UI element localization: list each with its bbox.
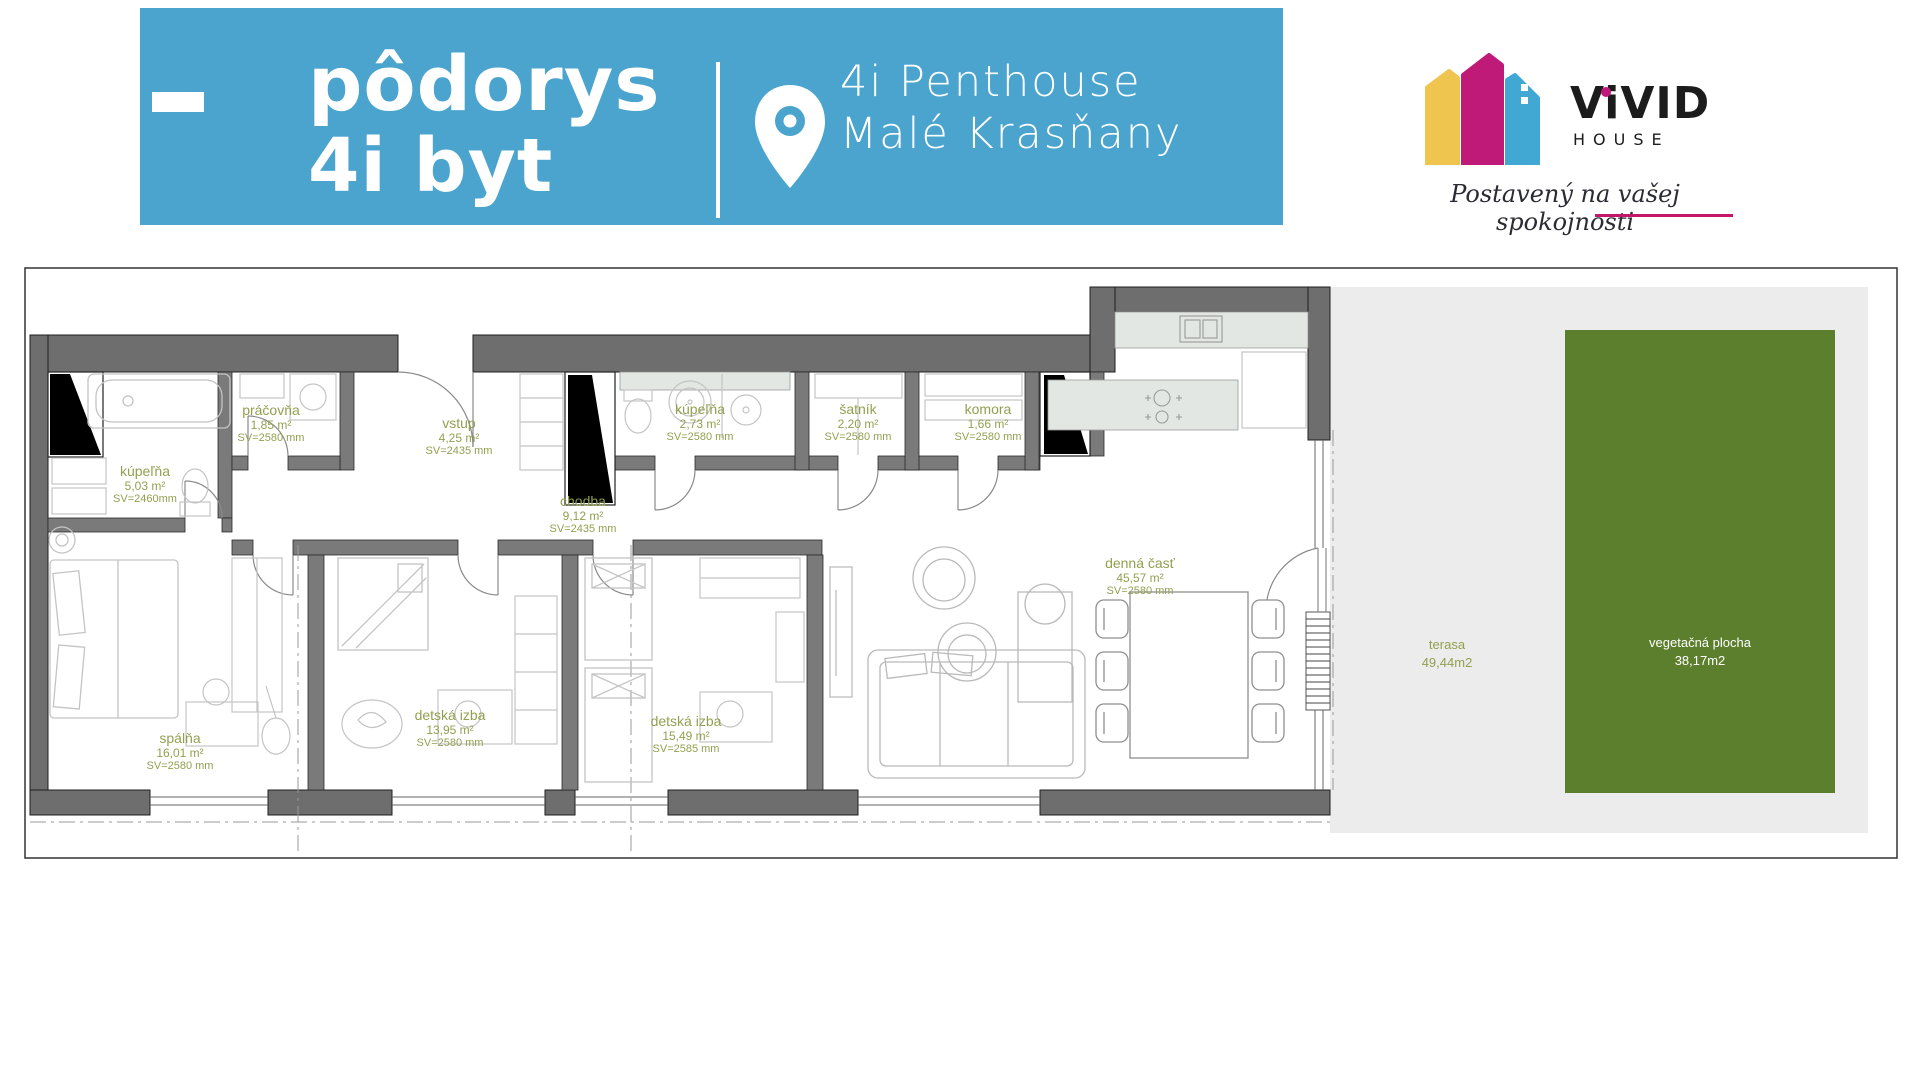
terrace-label: terasa 49,44m2 — [1422, 636, 1473, 672]
room-label-detska-izba-1: detská izba 13,95 m² SV=2580 mm — [415, 708, 486, 750]
room-label-denna-cast: denná časť 45,57 m² SV=2580 mm — [1105, 556, 1175, 598]
room-label-komora: komora 1,66 m² SV=2580 mm — [955, 402, 1022, 444]
room-label-detska-izba-2: detská izba 15,49 m² SV=2585 mm — [651, 714, 722, 756]
room-label-spalna: spálňa 16,01 m² SV=2580 mm — [147, 731, 214, 773]
sliding-door-hatch — [1306, 612, 1330, 710]
room-label-satnik: šatník 2,20 m² SV=2580 mm — [825, 402, 892, 444]
room-label-pracovna: práčovňa 1,85 m² SV=2580 mm — [238, 403, 305, 445]
flyer-page: pôdorys 4i byt 4i Penthouse Malé Krasňan… — [0, 0, 1920, 1080]
room-label-kupelna-2: kúpeľňa 2,73 m² SV=2580 mm — [667, 402, 734, 444]
green-area — [1565, 330, 1835, 793]
floor-plan-drawing — [0, 0, 1920, 1080]
dining-table — [1130, 592, 1248, 758]
floor-plan: kúpeľňa 5,03 m² SV=2460mm práčovňa 1,85 … — [0, 0, 1920, 1080]
room-label-vstup: vstup 4,25 m² SV=2435 mm — [426, 416, 493, 458]
room-label-chodba: chodba 9,12 m² SV=2435 mm — [550, 494, 617, 536]
room-label-kupelna-1: kúpeľňa 5,03 m² SV=2460mm — [113, 464, 177, 506]
dining-set — [1096, 592, 1284, 758]
green-area-label: vegetačná plocha 38,17m2 — [1649, 634, 1751, 670]
